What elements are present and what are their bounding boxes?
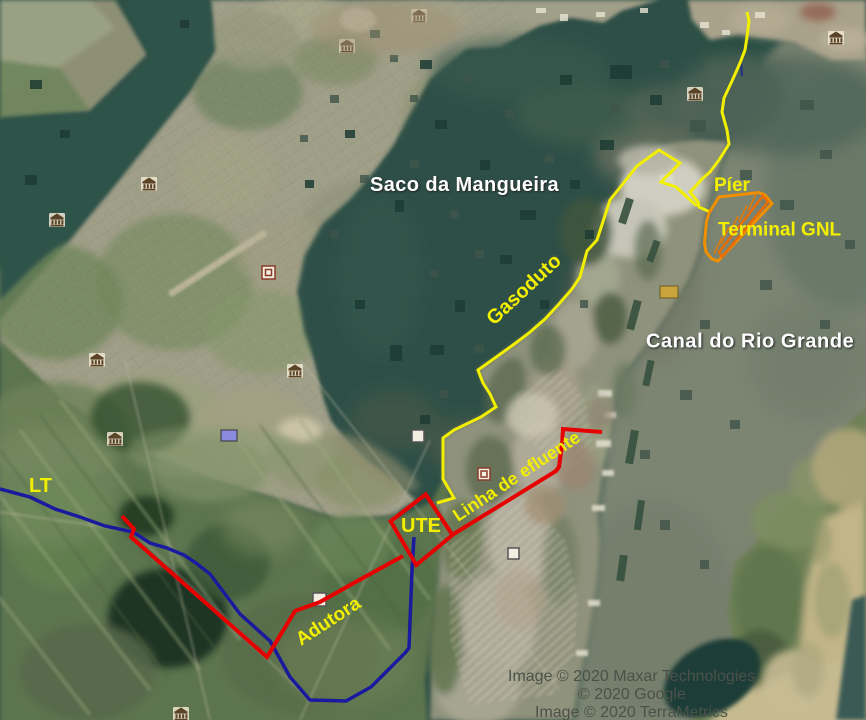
svg-text:© 2020 Google: © 2020 Google (578, 686, 686, 703)
svg-text:Image © 2020 TerraMetrics: Image © 2020 TerraMetrics (535, 704, 728, 720)
svg-text:Image © 2020 Maxar Technologie: Image © 2020 Maxar Technologies (508, 668, 755, 685)
svg-text:LT: LT (29, 475, 52, 497)
svg-text:Terminal GNL: Terminal GNL (718, 220, 842, 241)
svg-text:UTE: UTE (401, 515, 441, 537)
svg-text:Canal do Rio Grande: Canal do Rio Grande (646, 331, 854, 353)
svg-text:Píer: Píer (714, 175, 751, 196)
svg-text:Saco da Mangueira: Saco da Mangueira (370, 174, 560, 196)
